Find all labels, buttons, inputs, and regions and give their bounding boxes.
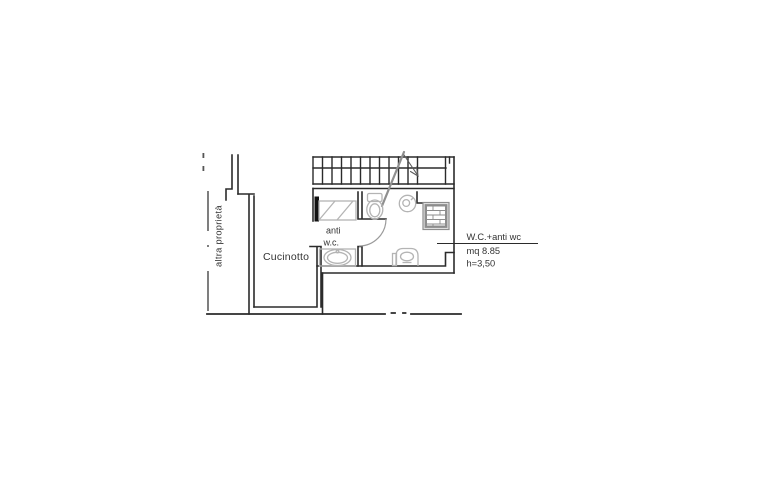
- shower-inner-frame: [426, 205, 446, 226]
- annotation-height: h=3,50: [467, 259, 496, 269]
- door-swing-arc: [359, 219, 386, 246]
- toilet-bowl-inner: [370, 204, 380, 217]
- wall-divider-door: [358, 192, 386, 266]
- toilet-symbol: [367, 194, 383, 220]
- boundary-dot: [203, 153, 205, 158]
- anti-wc-label-line2: w.c.: [323, 238, 340, 248]
- bidet-inner: [403, 200, 410, 207]
- staircase: [313, 157, 454, 189]
- washbasin-bowl: [401, 252, 414, 261]
- washbasin-column: [393, 254, 397, 266]
- tray-hatch-lines: [319, 201, 353, 220]
- wall-filled-segment: [315, 197, 320, 222]
- anti-wc-label-line1: anti: [326, 226, 341, 236]
- kitchenette-label: Cucinotto: [263, 251, 309, 263]
- floor-plan-canvas: Cucinotto anti w.c. W.C.+anti wc mq 8.85…: [0, 0, 764, 492]
- washbasin-outline: [396, 249, 418, 267]
- other-property-label: altra proprietà: [214, 205, 224, 267]
- bidet-tap: [411, 198, 414, 201]
- stair-band-lines: [313, 157, 454, 189]
- floor-plan-screenshot: Cucinotto anti w.c. W.C.+anti wc mq 8.85…: [0, 0, 764, 492]
- hatched-tray-symbol: [319, 201, 356, 220]
- shower-symbol: [423, 203, 449, 230]
- wall-shower-corner-step: [417, 192, 423, 203]
- sink-tap: [336, 250, 339, 253]
- ground-line: [207, 313, 461, 314]
- wall-left-lower: [238, 194, 254, 314]
- stair-steps: [313, 157, 450, 184]
- washbasin-symbol: [393, 249, 419, 267]
- boundary-dot: [203, 166, 205, 171]
- sink-symbol: [320, 249, 356, 266]
- annotation-title: W.C.+anti wc: [467, 232, 522, 242]
- bidet-symbol: [399, 195, 415, 211]
- wall-left-upper: [226, 155, 238, 200]
- annotation-area: mq 8.85: [467, 246, 501, 256]
- property-boundary-dashed-line: [203, 153, 209, 311]
- sink-basin-inner: [328, 252, 348, 263]
